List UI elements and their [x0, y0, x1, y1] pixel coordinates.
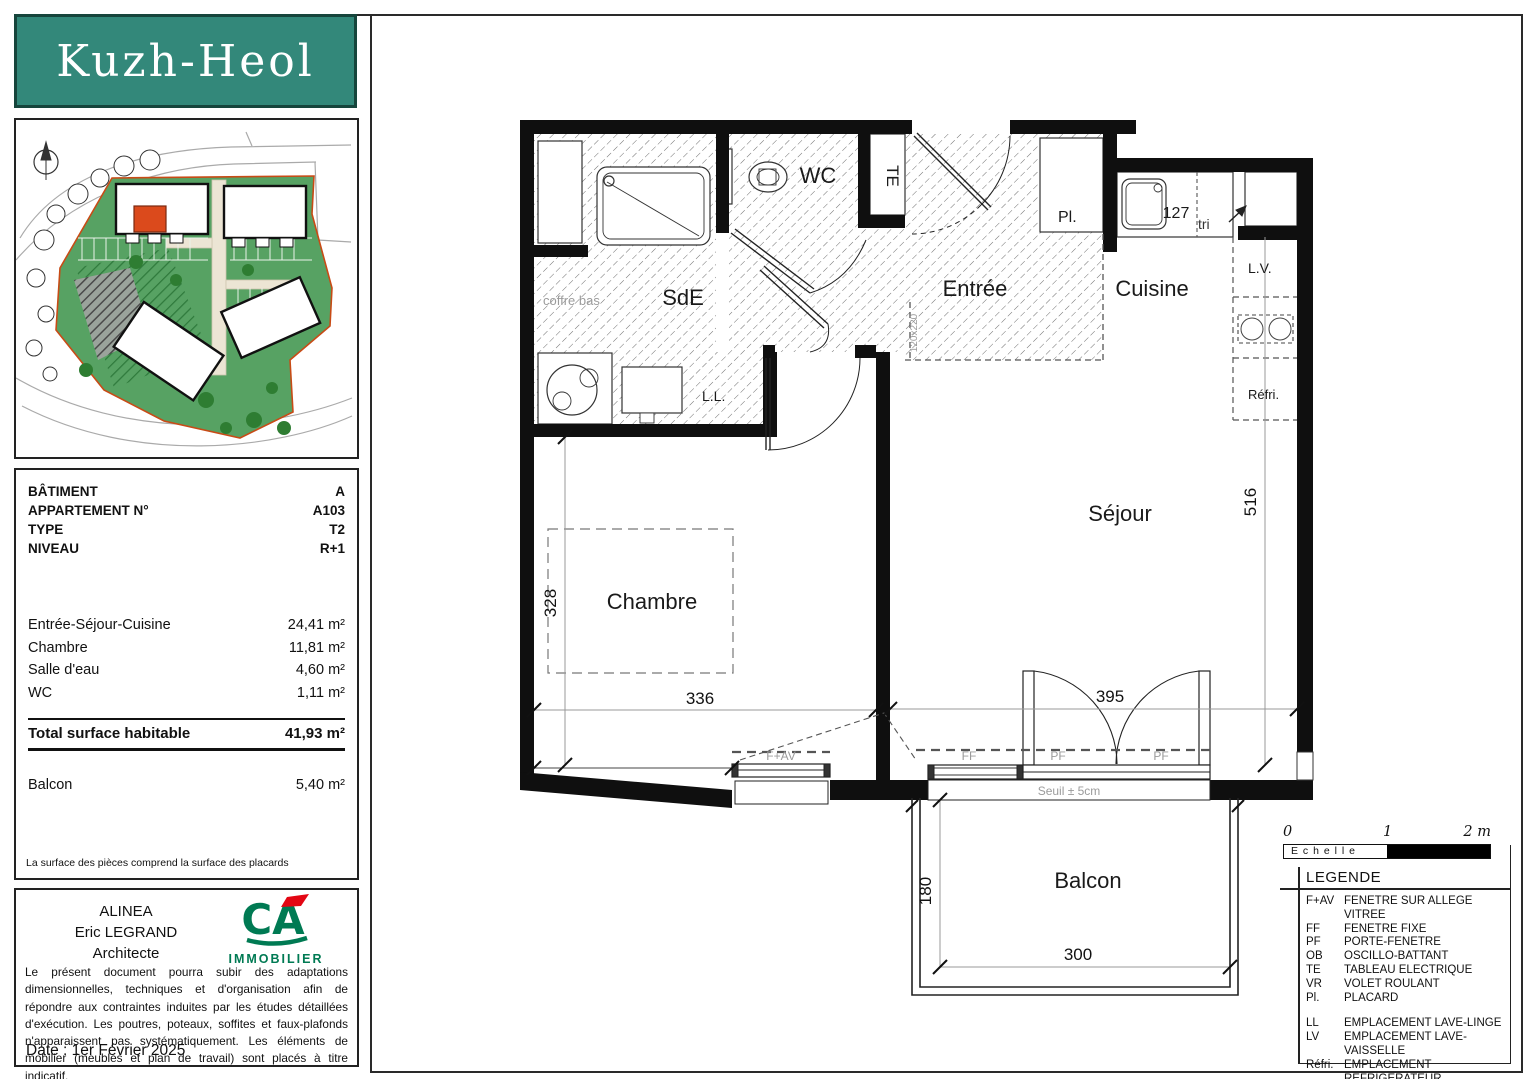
area-label: WC [28, 682, 52, 705]
legend-row: OB OSCILLO-BATTANT [1306, 950, 1507, 964]
area-row: Salle d'eau 4,60 m² [28, 659, 345, 682]
total-label: Total surface habitable [28, 725, 190, 742]
area-row: Entrée-Séjour-Cuisine 24,41 m² [28, 614, 345, 637]
apartment-info-box: BÂTIMENT A APPARTEMENT N° A103 TYPE T2 N… [14, 468, 359, 880]
wall-face [1297, 752, 1313, 780]
architect-role: Architecte [36, 943, 216, 964]
site-plan-map [16, 120, 353, 453]
project-title: Kuzh-Heol [56, 36, 315, 87]
surface-footnote: La surface des pièces comprend la surfac… [26, 857, 289, 869]
balcony-walls [912, 798, 1238, 995]
shower [597, 167, 710, 245]
dim-300: 300 [1064, 945, 1092, 964]
legend-row: LL EMPLACEMENT LAVE-LINGE [1306, 1017, 1507, 1031]
label-ff: FF [962, 749, 977, 763]
washbasin [538, 353, 612, 424]
window-ff [928, 765, 1023, 779]
total-surface-row: Total surface habitable 41,93 m² [28, 718, 345, 751]
balcony-value: 5,40 m² [296, 777, 345, 793]
label-lave-vaisselle: L.V. [1248, 260, 1272, 276]
balcony-area-row: Balcon 5,40 m² [28, 777, 345, 793]
room-label-chambre: Chambre [607, 589, 697, 614]
label-placard: Pl. [1058, 209, 1077, 226]
info-value: A [335, 482, 345, 501]
plan-sheet: Kuzh-Heol [0, 0, 1528, 1079]
north-arrow-icon [34, 142, 58, 180]
info-row-batiment: BÂTIMENT A [28, 482, 345, 501]
info-label: NIVEAU [28, 539, 79, 558]
info-label: BÂTIMENT [28, 482, 98, 501]
ca-immobilier-logo: CA IMMOBILIER [217, 894, 335, 966]
area-value: 24,41 m² [288, 614, 345, 637]
info-value: T2 [329, 520, 345, 539]
architect-company: ALINEA [36, 901, 216, 922]
architect-names: ALINEA Eric LEGRAND Architecte [36, 901, 216, 964]
highlighted-unit [134, 206, 166, 232]
info-row-type: TYPE T2 [28, 520, 345, 539]
burner [1241, 318, 1263, 340]
date-label: Date : 1er Février 2025 [26, 1042, 185, 1060]
area-value: 1,11 m² [297, 682, 345, 705]
balcony-label: Balcon [28, 777, 72, 793]
label-tri: tri [1198, 216, 1210, 232]
label-refrigerateur: Réfri. [1248, 387, 1279, 402]
dim-336: 336 [686, 689, 714, 708]
burner [1269, 318, 1291, 340]
scale-bar-graphic: E c h e l l e [1283, 844, 1491, 859]
area-label: Chambre [28, 637, 88, 660]
info-row-appartement: APPARTEMENT N° A103 [28, 501, 345, 520]
scale-bar: 0 1 2 m E c h e l l e [1283, 824, 1491, 859]
legend-divider [1280, 888, 1511, 890]
dim-127: 127 [1163, 205, 1190, 222]
scale-bar-fill [1387, 845, 1490, 858]
legend-row: F+AV FENETRE SUR ALLEGE VITREE [1306, 895, 1507, 923]
label-pf-1: PF [1050, 749, 1065, 763]
scale-0: 0 [1283, 824, 1292, 840]
room-label-sde: SdE [662, 285, 704, 310]
area-row: Chambre 11,81 m² [28, 637, 345, 660]
label-door-size: 120x220 [909, 313, 920, 352]
label-coffre-bas: coffre bas [543, 293, 600, 308]
scale-1: 1 [1383, 824, 1392, 840]
scale-2m: 2 m [1463, 824, 1491, 840]
legend-row: TE TABLEAU ELECTRIQUE [1306, 964, 1507, 978]
architect-box: ALINEA Eric LEGRAND Architecte CA IMMOBI… [14, 888, 359, 1067]
wall-niche [538, 141, 582, 243]
total-value: 41,93 m² [285, 725, 345, 742]
label-seuil: Seuil ± 5cm [1038, 784, 1101, 798]
legend-row: Réfri. EMPLACEMENT REFRIGERATEUR [1306, 1059, 1507, 1079]
legend-row: Pl. PLACARD [1306, 992, 1507, 1006]
legend-title: LEGENDE [1306, 869, 1381, 886]
room-label-entree: Entrée [943, 276, 1008, 301]
window-f-av [732, 764, 830, 804]
info-label: TYPE [28, 520, 63, 539]
room-label-balcon: Balcon [1054, 868, 1121, 893]
info-label: APPARTEMENT N° [28, 501, 149, 520]
legend-row: PF PORTE-FENETRE [1306, 936, 1507, 950]
area-value: 11,81 m² [289, 637, 345, 660]
label-tableau-electrique: TE [883, 165, 902, 187]
tri-duct [1245, 172, 1297, 226]
legend-row: FF FENETRE FIXE [1306, 923, 1507, 937]
project-logo: Kuzh-Heol [14, 14, 357, 108]
windows [732, 764, 1238, 995]
area-value: 4,60 m² [296, 659, 345, 682]
label-pf-2: PF [1153, 749, 1168, 763]
ca-logo-icon: CA [231, 894, 321, 946]
legend-row: VR VOLET ROULANT [1306, 978, 1507, 992]
legend-row: LV EMPLACEMENT LAVE-VAISSELLE [1306, 1031, 1507, 1059]
info-value: A103 [313, 501, 345, 520]
area-row: WC 1,11 m² [28, 682, 345, 705]
pf-threshold [1023, 765, 1210, 779]
bedroom-door [766, 358, 860, 450]
label-f-av: F+AV [766, 749, 795, 763]
dim-328: 328 [541, 589, 560, 617]
label-lave-linge: L.L. [702, 388, 725, 404]
room-label-sejour: Séjour [1088, 501, 1152, 526]
architect-name: Eric LEGRAND [36, 922, 216, 943]
dim-180: 180 [916, 877, 935, 905]
info-value: R+1 [320, 539, 345, 558]
dim-516: 516 [1241, 488, 1260, 516]
disclaimer-text: Le présent document pourra subir des ada… [25, 964, 348, 1079]
info-row-niveau: NIVEAU R+1 [28, 539, 345, 558]
area-label: Salle d'eau [28, 659, 99, 682]
kitchen-sink [1122, 179, 1166, 229]
room-label-wc: WC [800, 163, 837, 188]
area-label: Entrée-Séjour-Cuisine [28, 614, 171, 637]
dim-395: 395 [1096, 687, 1124, 706]
legend: LEGENDE F+AV FENETRE SUR ALLEGE VITREE F… [1280, 864, 1511, 1064]
legend-border-left [1298, 867, 1300, 1064]
dimension-texts: 336 395 300 516 328 180 [541, 488, 1260, 964]
site-plan-box [14, 118, 359, 459]
legend-border-right [1510, 845, 1512, 1064]
room-label-cuisine: Cuisine [1115, 276, 1188, 301]
scale-label: E c h e l l e [1291, 845, 1356, 858]
